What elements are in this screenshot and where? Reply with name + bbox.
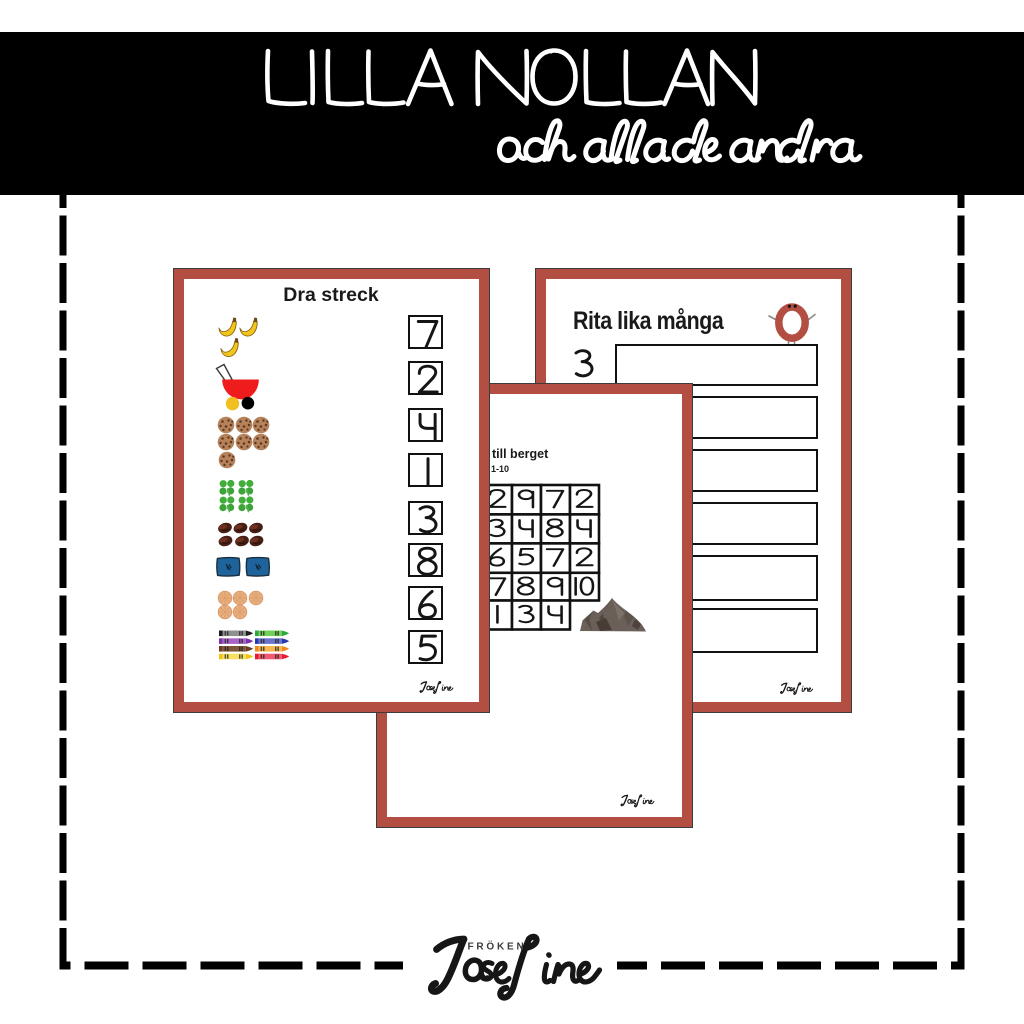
svg-text:FRÖKEN: FRÖKEN [467, 940, 526, 953]
